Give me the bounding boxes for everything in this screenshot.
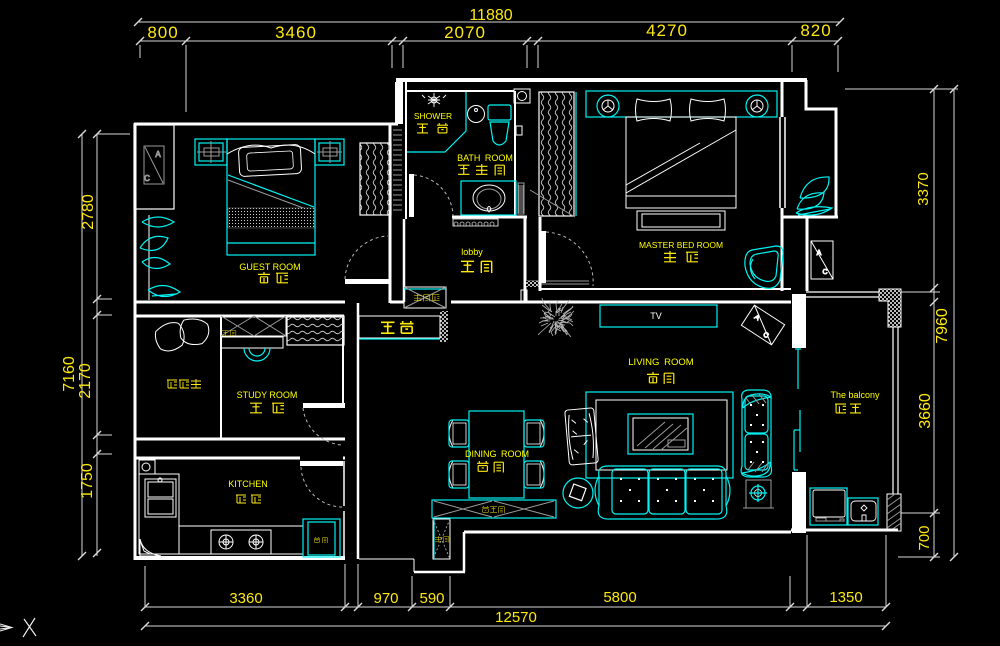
svg-text:4270: 4270 xyxy=(646,21,688,40)
svg-text:A: A xyxy=(817,250,822,257)
svg-text:7160: 7160 xyxy=(61,356,78,392)
svg-text:MASTER BED ROOM: MASTER BED ROOM xyxy=(639,240,723,250)
svg-text:C: C xyxy=(144,174,150,183)
svg-text:A: A xyxy=(155,150,161,159)
svg-text:C: C xyxy=(822,269,827,276)
svg-text:The balcony: The balcony xyxy=(830,390,880,400)
svg-text:7960: 7960 xyxy=(934,308,951,344)
svg-text:3460: 3460 xyxy=(275,23,317,42)
svg-text:800: 800 xyxy=(147,23,178,42)
svg-text:BATH ROOM: BATH ROOM xyxy=(457,153,513,163)
svg-text:3660: 3660 xyxy=(917,393,934,429)
svg-text:970: 970 xyxy=(373,590,398,607)
svg-text:KITCHEN: KITCHEN xyxy=(228,479,268,489)
svg-text:1750: 1750 xyxy=(79,463,96,499)
svg-text:DINING ROOM: DINING ROOM xyxy=(465,449,529,459)
svg-text:12570: 12570 xyxy=(495,609,537,626)
svg-text:LIVING ROOM: LIVING ROOM xyxy=(628,357,694,368)
svg-text:3360: 3360 xyxy=(229,590,262,607)
svg-text:11880: 11880 xyxy=(469,7,512,24)
svg-text:820: 820 xyxy=(800,21,831,40)
svg-text:5800: 5800 xyxy=(603,589,636,606)
svg-text:2780: 2780 xyxy=(80,194,97,230)
svg-text:lobby: lobby xyxy=(461,247,483,257)
svg-text:TV: TV xyxy=(650,311,662,321)
svg-text:1350: 1350 xyxy=(829,589,862,606)
svg-text:700: 700 xyxy=(916,525,933,550)
svg-text:590: 590 xyxy=(419,590,444,607)
svg-text:3370: 3370 xyxy=(915,172,932,205)
svg-text:2170: 2170 xyxy=(77,363,94,399)
svg-text:GUEST ROOM: GUEST ROOM xyxy=(239,262,300,272)
svg-text:SHOWER: SHOWER xyxy=(414,111,452,121)
svg-text:STUDY ROOM: STUDY ROOM xyxy=(237,390,298,400)
svg-text:2070: 2070 xyxy=(444,23,486,42)
